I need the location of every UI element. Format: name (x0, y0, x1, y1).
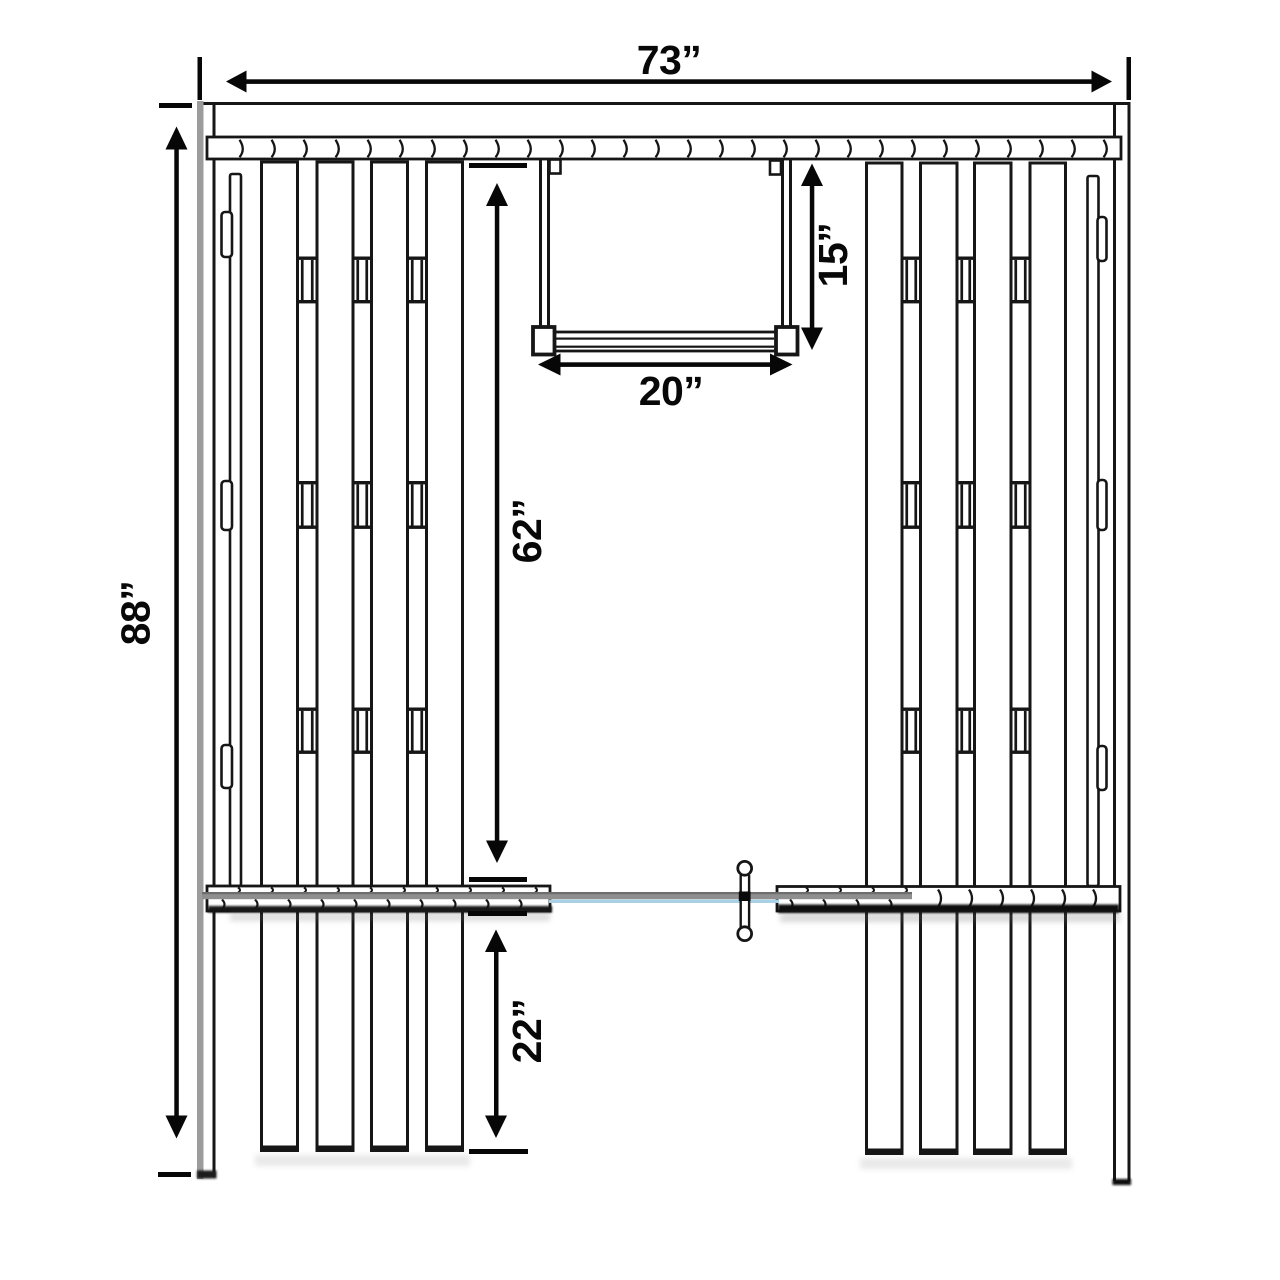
svg-text:15”: 15” (810, 223, 856, 288)
svg-text:22”: 22” (504, 999, 550, 1064)
svg-text:73”: 73” (637, 37, 702, 83)
svg-text:88”: 88” (113, 581, 159, 646)
svg-text:62”: 62” (504, 499, 550, 564)
svg-text:20”: 20” (639, 368, 704, 414)
